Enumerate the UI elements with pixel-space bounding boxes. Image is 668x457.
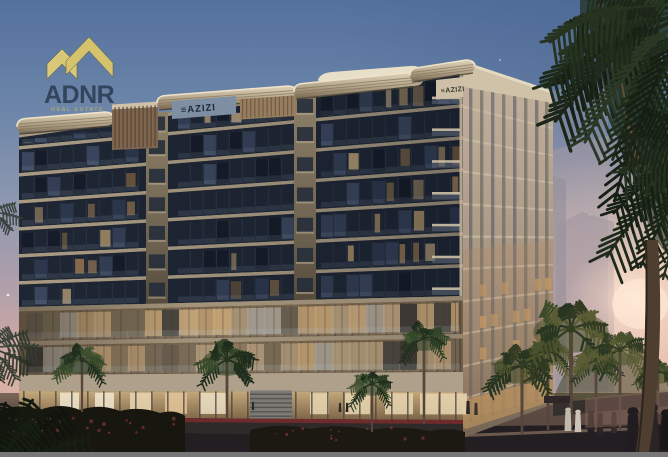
svg-text:REAL ESTATE: REAL ESTATE bbox=[51, 107, 104, 113]
svg-text:ADNR: ADNR bbox=[44, 81, 115, 109]
